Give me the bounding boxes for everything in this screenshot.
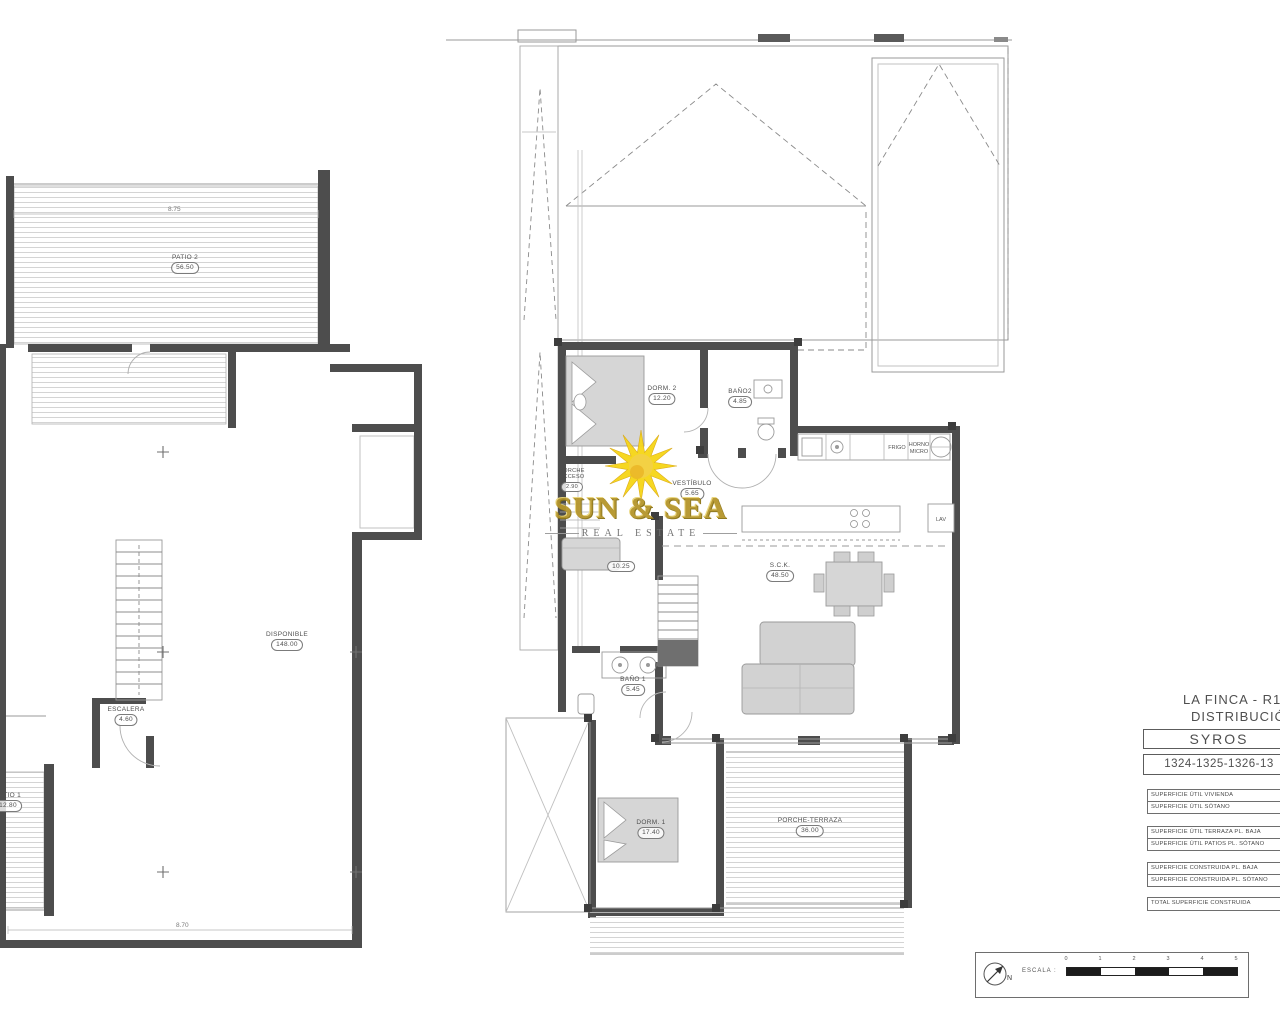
room-name: PATIO 2 [171, 254, 199, 261]
fridge-label: FRIGO [888, 445, 906, 451]
room-name: PATIO 1 [0, 792, 22, 799]
scale-tick: 4 [1200, 956, 1203, 962]
roof-outline [446, 30, 1012, 372]
room-label-dorm2: DORM. 2 12.20 [647, 385, 676, 405]
room-name: DORM. 1 [636, 819, 665, 826]
sofa-icon [742, 622, 855, 714]
room-area: 4.85 [728, 396, 752, 407]
room-area: 48.50 [766, 570, 794, 581]
room-label-patio2: PATIO 2 56.50 [171, 254, 199, 274]
room-name: DORM. 2 [647, 385, 676, 392]
roof-ticks [758, 34, 1008, 42]
dim-bottom: 8.70 [176, 922, 189, 929]
room-name: DISPONIBLE [266, 631, 308, 638]
scale-tick: 3 [1166, 956, 1169, 962]
room-area: 12.20 [648, 393, 676, 404]
scale-tick: 1 [1098, 956, 1101, 962]
project-subtitle: DISTRIBUCIÓN [1191, 709, 1280, 724]
room-area: 4.60 [114, 714, 138, 725]
blueprint-canvas: 8.75 8.70 [0, 0, 1280, 1024]
surface-row: SUPERFICIE CONSTRUIDA PL. SÓTANO [1147, 874, 1280, 888]
kitchen-island-icon [742, 506, 900, 532]
scale-box: N ESCALA : 0 1 2 3 4 5 [975, 952, 1249, 998]
model-name-box: SYROS [1143, 729, 1280, 749]
scale-tick: 0 [1064, 956, 1067, 962]
dim-top: 8.75 [168, 206, 181, 213]
room-label-bano1: BAÑO 1 5.45 [620, 676, 646, 696]
room-name: PORCHE-TERRAZA [778, 817, 843, 824]
room-name: S.C.K. [766, 562, 794, 569]
patio2-hatch [14, 186, 318, 344]
room-label-sck: S.C.K. 48.50 [766, 562, 794, 582]
oven-label: HORNO [909, 442, 930, 448]
watermark-tagline: REAL ESTATE [582, 528, 701, 539]
room-area: 148.00 [271, 639, 303, 650]
room-label-dorm1: DORM. 1 17.40 [636, 819, 665, 839]
baja-stairs-icon [658, 576, 698, 666]
project-title: LA FINCA - R13 [1183, 692, 1280, 707]
room-area: 12.80 [0, 800, 22, 811]
plot-numbers-box: 1324-1325-1326-13 [1143, 754, 1280, 775]
room-area: 56.50 [171, 262, 199, 273]
roof-dashed-lines [566, 48, 1008, 350]
room-label-patio1: PATIO 1 12.80 [0, 792, 22, 812]
porch-x [506, 718, 590, 912]
sotano-plan: 8.75 8.70 [0, 170, 422, 948]
dining-table-icon [814, 552, 894, 616]
watermark-brand: SUN & SEA [545, 490, 737, 526]
room-area: 5.45 [621, 684, 645, 695]
scale-bar [1066, 967, 1238, 976]
scale-label: ESCALA : [1022, 968, 1057, 974]
room-label-bano2: BAÑO2 4.85 [728, 388, 752, 408]
surface-row: SUPERFICIE ÚTIL SÓTANO [1147, 801, 1280, 815]
room-label-escalera: ESCALERA 4.60 [107, 706, 144, 726]
washer-label: LAV [936, 517, 946, 523]
room-area: 17.40 [637, 827, 665, 838]
room-name: ESCALERA [107, 706, 144, 713]
micro-label: MICRO [910, 449, 929, 455]
deck-hatch [590, 909, 904, 954]
room-name: BAÑO2 [728, 388, 752, 395]
surface-row: TOTAL SUPERFICIE CONSTRUIDA [1147, 897, 1280, 911]
room-label-disponible: DISPONIBLE 148.00 [266, 631, 308, 651]
room-area: 36.00 [796, 825, 824, 836]
room-label-salita: 10.25 [607, 560, 635, 572]
room-label-porche-terraza: PORCHE-TERRAZA 36.00 [778, 817, 843, 837]
room-name: BAÑO 1 [620, 676, 646, 683]
baja-dashed-lines [662, 540, 950, 546]
surface-row: SUPERFICIE ÚTIL PATIOS PL. SÓTANO [1147, 838, 1280, 852]
scale-tick: 5 [1234, 956, 1237, 962]
room-area: 10.25 [607, 561, 635, 572]
mid-hatch [32, 354, 226, 424]
north-label: N [1007, 975, 1012, 982]
watermark: SUN & SEA REAL ESTATE [545, 426, 737, 539]
sotano-column-markers [157, 446, 362, 878]
scale-tick: 2 [1132, 956, 1135, 962]
